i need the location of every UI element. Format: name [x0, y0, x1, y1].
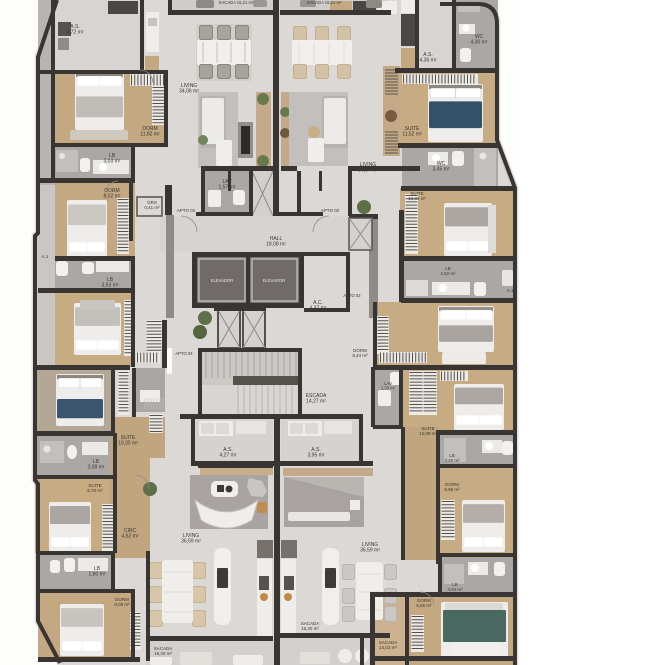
svg-text:11,52 m²: 11,52 m²	[402, 132, 422, 138]
svg-text:4,30 m²: 4,30 m²	[471, 40, 488, 46]
svg-text:4,36 m²: 4,36 m²	[420, 58, 437, 64]
svg-text:10,36 m²: 10,36 m²	[408, 196, 426, 201]
svg-text:1,33 m²: 1,33 m²	[381, 386, 396, 391]
svg-text:4,52 m²: 4,52 m²	[440, 271, 456, 276]
svg-text:ELEVADOR: ELEVADOR	[263, 278, 286, 283]
svg-text:SACADA 15,21 m²: SACADA 15,21 m²	[219, 0, 254, 5]
svg-text:16,20 m²: 16,20 m²	[154, 651, 172, 656]
svg-text:36,59 m²: 36,59 m²	[181, 539, 201, 545]
svg-text:9,96 m²: 9,96 m²	[444, 487, 460, 492]
svg-text:14,27 m²: 14,27 m²	[306, 399, 326, 405]
svg-text:18,08 m²: 18,08 m²	[266, 242, 286, 248]
svg-text:APTO 04: APTO 04	[175, 351, 193, 356]
svg-text:3,03 m²: 3,03 m²	[104, 159, 121, 165]
svg-text:SACADA 15,21 m²: SACADA 15,21 m²	[307, 0, 342, 5]
svg-text:A.1: A.1	[507, 288, 514, 293]
svg-text:3,20 m²: 3,20 m²	[444, 458, 460, 463]
svg-text:ELEVADOR: ELEVADOR	[211, 278, 234, 283]
svg-text:3,53 m²: 3,53 m²	[102, 283, 119, 289]
svg-text:4,72 m²: 4,72 m²	[67, 30, 84, 36]
svg-text:3,45 m²: 3,45 m²	[433, 167, 450, 173]
svg-text:10,35 m²: 10,35 m²	[118, 441, 138, 447]
svg-text:APTO 02: APTO 02	[321, 208, 340, 213]
svg-text:4,27 m²: 4,27 m²	[220, 453, 237, 459]
svg-text:1,80 m²: 1,80 m²	[89, 572, 106, 578]
svg-text:A.1: A.1	[42, 254, 49, 259]
svg-text:14,03 m²: 14,03 m²	[379, 645, 397, 650]
svg-text:3,08 m²: 3,08 m²	[88, 465, 105, 471]
svg-text:11,82 m²: 11,82 m²	[140, 132, 160, 138]
svg-text:6,70 m²: 6,70 m²	[87, 488, 103, 493]
svg-text:APTO 02: APTO 02	[343, 293, 361, 298]
svg-text:6,96 m²: 6,96 m²	[416, 603, 432, 608]
svg-text:8,08 m²: 8,08 m²	[114, 602, 130, 607]
svg-text:1,57 m²: 1,57 m²	[219, 185, 236, 191]
svg-text:3,95 m²: 3,95 m²	[308, 453, 325, 459]
svg-text:0,41 m²: 0,41 m²	[144, 205, 160, 210]
svg-text:4,52 m²: 4,52 m²	[122, 534, 139, 540]
svg-text:8,44 m²: 8,44 m²	[352, 353, 368, 358]
svg-text:34,06 m²: 34,06 m²	[179, 89, 199, 95]
svg-text:36,59 m²: 36,59 m²	[360, 548, 380, 554]
svg-text:3,04 m²: 3,04 m²	[447, 587, 463, 592]
svg-text:12,09 m²: 12,09 m²	[419, 431, 437, 436]
svg-text:8,02 m²: 8,02 m²	[104, 194, 121, 200]
svg-text:16,20 m²: 16,20 m²	[301, 626, 319, 631]
svg-text:APTO 01: APTO 01	[177, 208, 196, 213]
